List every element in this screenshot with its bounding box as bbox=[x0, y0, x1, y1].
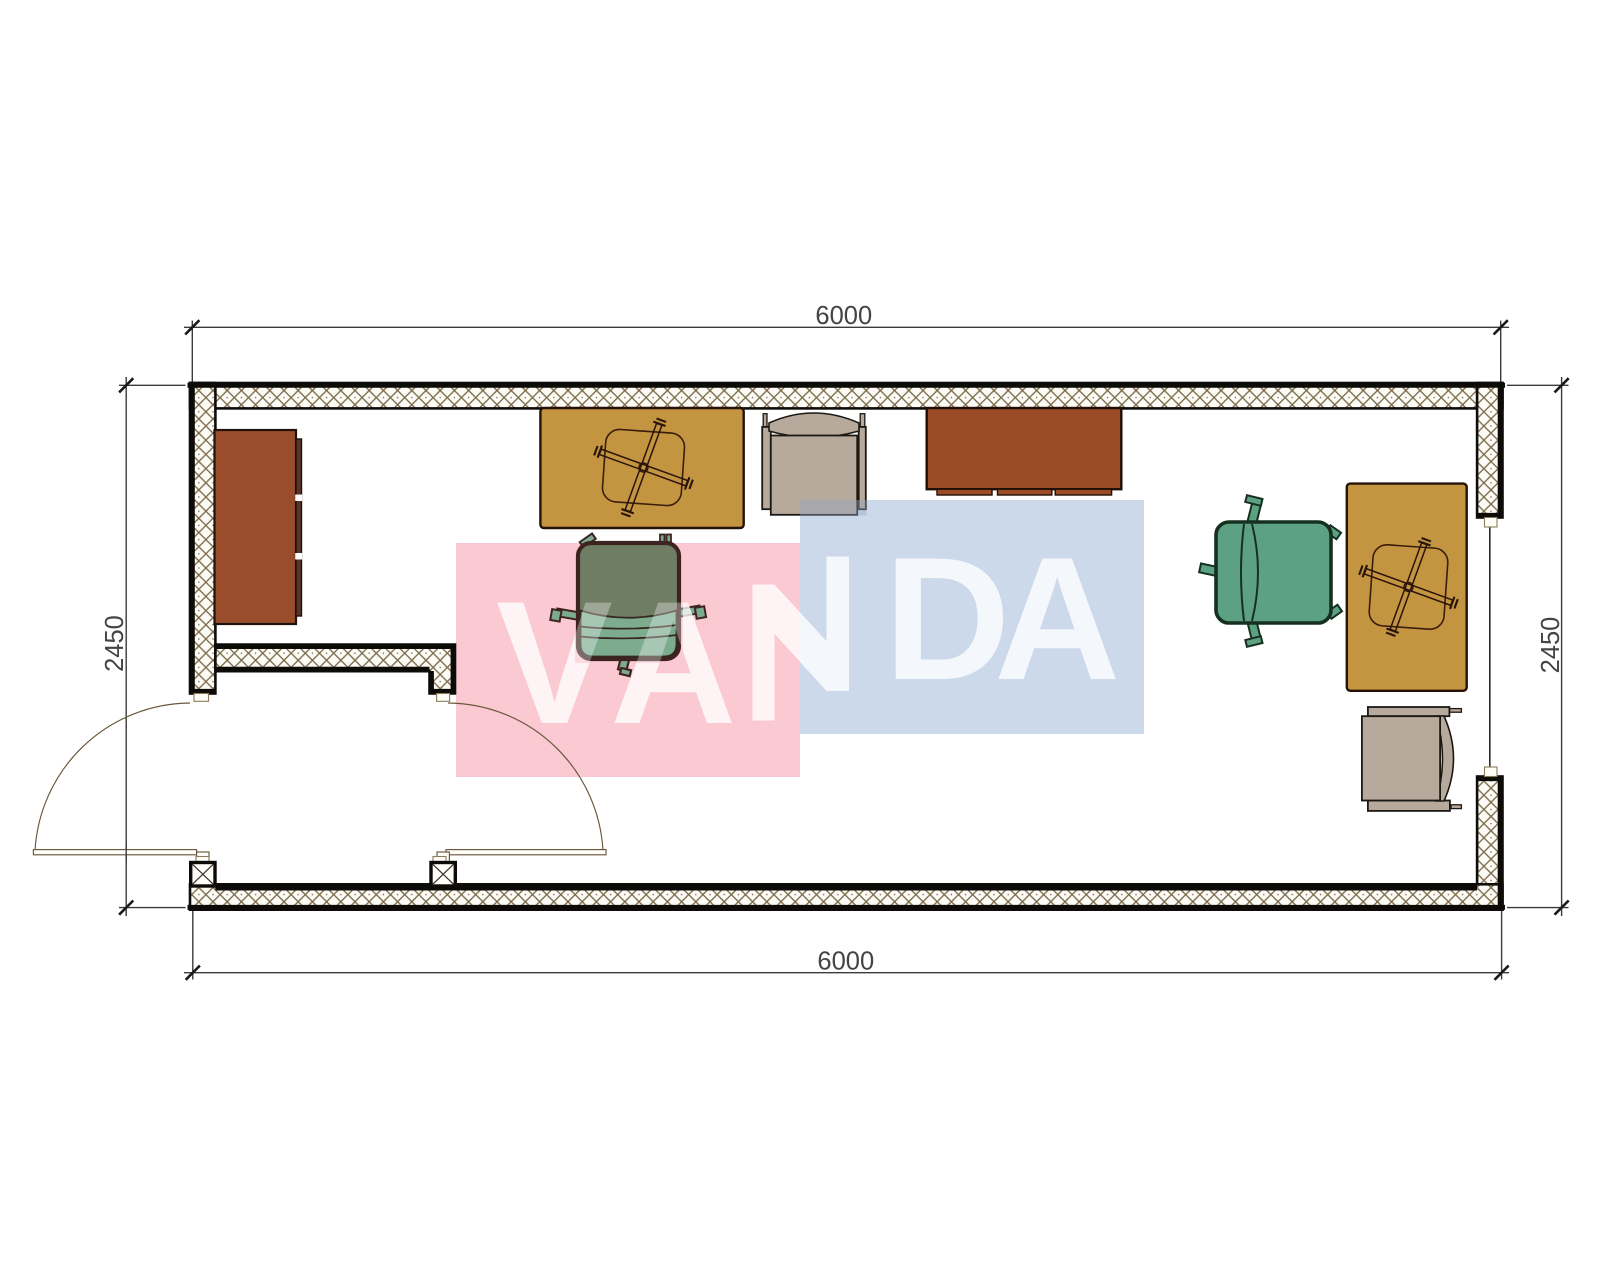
svg-text:6000: 6000 bbox=[817, 948, 874, 976]
svg-text:2450: 2450 bbox=[1537, 617, 1565, 674]
svg-text:D: D bbox=[884, 522, 1010, 717]
svg-text:6000: 6000 bbox=[815, 302, 872, 330]
svg-text:A: A bbox=[610, 566, 736, 761]
svg-text:A: A bbox=[994, 522, 1120, 717]
svg-text:V: V bbox=[496, 566, 613, 761]
svg-text:2450: 2450 bbox=[101, 615, 129, 672]
